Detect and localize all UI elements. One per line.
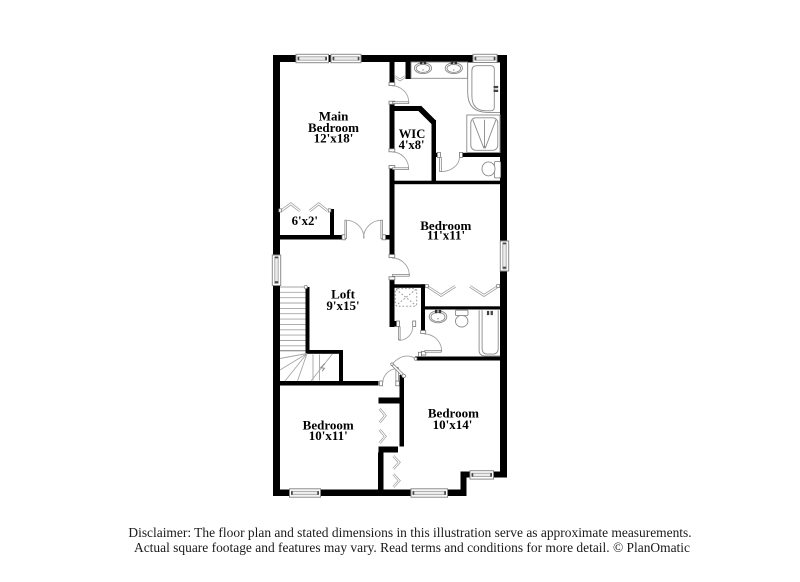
svg-text:Actual square footage and feat: Actual square footage and features may v… (134, 540, 690, 555)
svg-text:6'x2': 6'x2' (292, 214, 318, 228)
svg-text:10'x14': 10'x14' (433, 417, 473, 432)
svg-text:Disclaimer: The floor plan and: Disclaimer: The floor plan and stated di… (128, 525, 691, 540)
svg-text:12'x18': 12'x18' (314, 131, 354, 146)
svg-text:9'x15': 9'x15' (326, 298, 359, 313)
svg-text:10'x11': 10'x11' (309, 428, 348, 443)
svg-text:4'x8': 4'x8' (399, 138, 425, 152)
svg-text:11'x11': 11'x11' (427, 228, 465, 243)
